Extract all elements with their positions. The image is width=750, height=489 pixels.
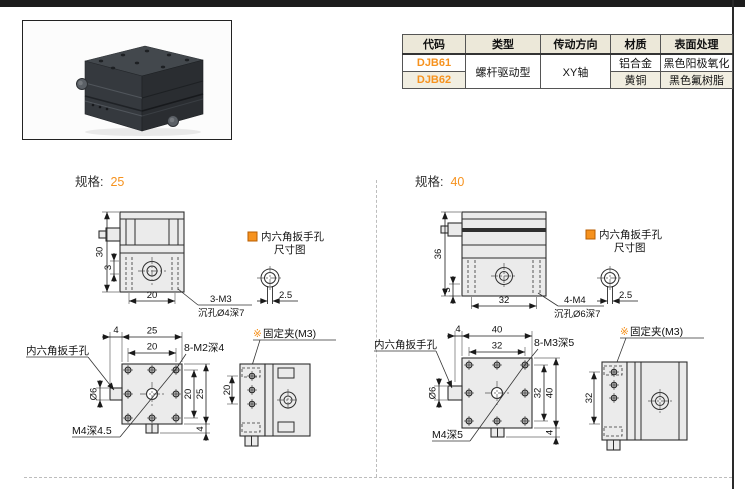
- knob-shaft: [448, 386, 462, 400]
- side-body: [240, 364, 310, 446]
- dim-height: 30: [95, 247, 106, 258]
- hex-note-title: 内六角扳手孔: [261, 230, 324, 243]
- catalog-page: 代码 类型 传动方向 材质 表面处理 DJB61 螺杆驱动型 XY轴 铝合金 黑…: [0, 0, 750, 489]
- cell-material-2: 黄铜: [611, 72, 661, 89]
- cell-type: 螺杆驱动型: [466, 54, 541, 89]
- dim-height: 32: [584, 393, 595, 404]
- hex-note-subtitle: 尺寸图: [274, 243, 306, 256]
- dim-inner-right: 32: [533, 388, 544, 399]
- dim-outer-top: 25: [147, 326, 158, 337]
- spec40-hex-note: 内六角扳手孔 尺寸图 2.5: [584, 224, 714, 312]
- spec25-title: 规格:25: [75, 171, 124, 190]
- dim-inner-right: 20: [183, 389, 194, 400]
- clamp-text: 固定夹(M3): [263, 327, 316, 340]
- dim-dia: Ø6: [89, 388, 100, 401]
- col-header-material: 材质: [611, 35, 661, 55]
- thread-callout: 4-M4: [564, 295, 586, 306]
- dim-lip: 3: [103, 265, 114, 270]
- side-dimensions: 20: [222, 376, 238, 404]
- spec25-hex-note: 内六角扳手孔 尺寸图 2.5: [246, 226, 361, 312]
- spec40-title-label: 规格:: [415, 175, 443, 189]
- cell-surface-2: 黑色氟树脂: [661, 72, 733, 89]
- table-header-row: 代码 类型 传动方向 材质 表面处理: [403, 35, 733, 55]
- dim-offset: 4: [455, 324, 460, 335]
- clamp-marker: ※: [620, 326, 629, 338]
- table-row-djb61: DJB61 螺杆驱动型 XY轴 铝合金 黑色阳极氧化: [403, 54, 733, 72]
- dim-outer-right: 40: [545, 388, 556, 399]
- dim-width: 20: [147, 290, 158, 301]
- dim-height: 36: [433, 249, 444, 260]
- col-header-code: 代码: [403, 35, 466, 55]
- spec25-side-view: ※ 固定夹(M3) 20: [222, 324, 357, 464]
- spec40-title-value: 40: [450, 175, 464, 189]
- col-header-surface: 表面处理: [661, 35, 733, 55]
- cell-code-djb62: DJB62: [403, 72, 466, 89]
- dim-tab: 4: [545, 430, 556, 435]
- thread-pattern-label: 8-M3深5: [534, 337, 574, 349]
- spec25-top-view: 4 25 20 20 25 4 Ø6 内六角扳手孔 M4深4.5: [24, 320, 252, 474]
- spec25-front-view: 30 3 20 3-M3 沉孔Ø4深7: [86, 204, 256, 320]
- clamp-text: 固定夹(M3): [630, 325, 683, 338]
- spec40-top-view: 4 40 32 32 40 4 Ø6 内六角扳手孔 M4深5: [372, 318, 602, 478]
- spec-table: 代码 类型 传动方向 材质 表面处理 DJB61 螺杆驱动型 XY轴 铝合金 黑…: [402, 34, 733, 89]
- dim-lip: 5: [442, 287, 453, 292]
- hex-note-subtitle: 尺寸图: [614, 241, 646, 254]
- center-thread-label: M4深5: [432, 429, 463, 441]
- dim-height: 20: [222, 385, 233, 396]
- spec40-front-view: 36 5 32 4-M4 沉孔Ø6深7: [424, 202, 606, 322]
- counterbore-callout: 沉孔Ø4深7: [198, 308, 244, 319]
- knob-shaft: [110, 388, 122, 400]
- adjust-knob: [448, 223, 462, 236]
- wrench-hole-label: 内六角扳手孔: [26, 344, 89, 357]
- product-photo-box: [22, 20, 232, 140]
- spec25-title-value: 25: [110, 175, 124, 189]
- dim-tab: 4: [195, 426, 206, 431]
- cell-surface-1: 黑色阳极氧化: [661, 54, 733, 72]
- adjust-knob: [106, 228, 120, 241]
- cell-direction: XY轴: [541, 54, 611, 89]
- dim-dia: Ø6: [428, 387, 439, 400]
- col-header-direction: 传动方向: [541, 35, 611, 55]
- front-body: [441, 212, 546, 296]
- side-body: [602, 362, 687, 450]
- col-header-type: 类型: [466, 35, 541, 55]
- hex-note-title: 内六角扳手孔: [599, 228, 662, 241]
- hex-note-icon: [586, 230, 595, 239]
- front-body: [99, 212, 184, 292]
- clamp-marker: ※: [253, 328, 262, 340]
- product-cube: [77, 46, 204, 131]
- dim-outer-top: 40: [492, 325, 503, 336]
- dim-outer-right: 25: [195, 389, 206, 400]
- cell-material-1: 铝合金: [611, 54, 661, 72]
- hex-note-icon: [248, 232, 257, 241]
- dim-width: 32: [499, 295, 510, 306]
- side-dimensions: 32: [584, 372, 600, 424]
- hex-dim: 2.5: [619, 290, 632, 301]
- hex-dim: 2.5: [279, 290, 292, 301]
- spec40-side-view: ※ 固定夹(M3) 32: [584, 322, 732, 468]
- thread-callout: 3-M3: [210, 294, 232, 305]
- cell-code-djb61: DJB61: [403, 54, 466, 72]
- spec40-title: 规格:40: [415, 171, 464, 190]
- thread-pattern-label: 8-M2深4: [184, 342, 224, 354]
- dim-offset: 4: [113, 325, 118, 336]
- dim-inner-top: 20: [147, 342, 158, 353]
- top-body: [448, 358, 532, 437]
- spec25-title-label: 规格:: [75, 175, 103, 189]
- top-border-bar: [0, 0, 745, 7]
- center-thread-label: M4深4.5: [72, 425, 112, 437]
- product-photo: [23, 21, 230, 138]
- dim-inner-top: 32: [492, 341, 503, 352]
- wrench-hole-label: 内六角扳手孔: [374, 338, 437, 351]
